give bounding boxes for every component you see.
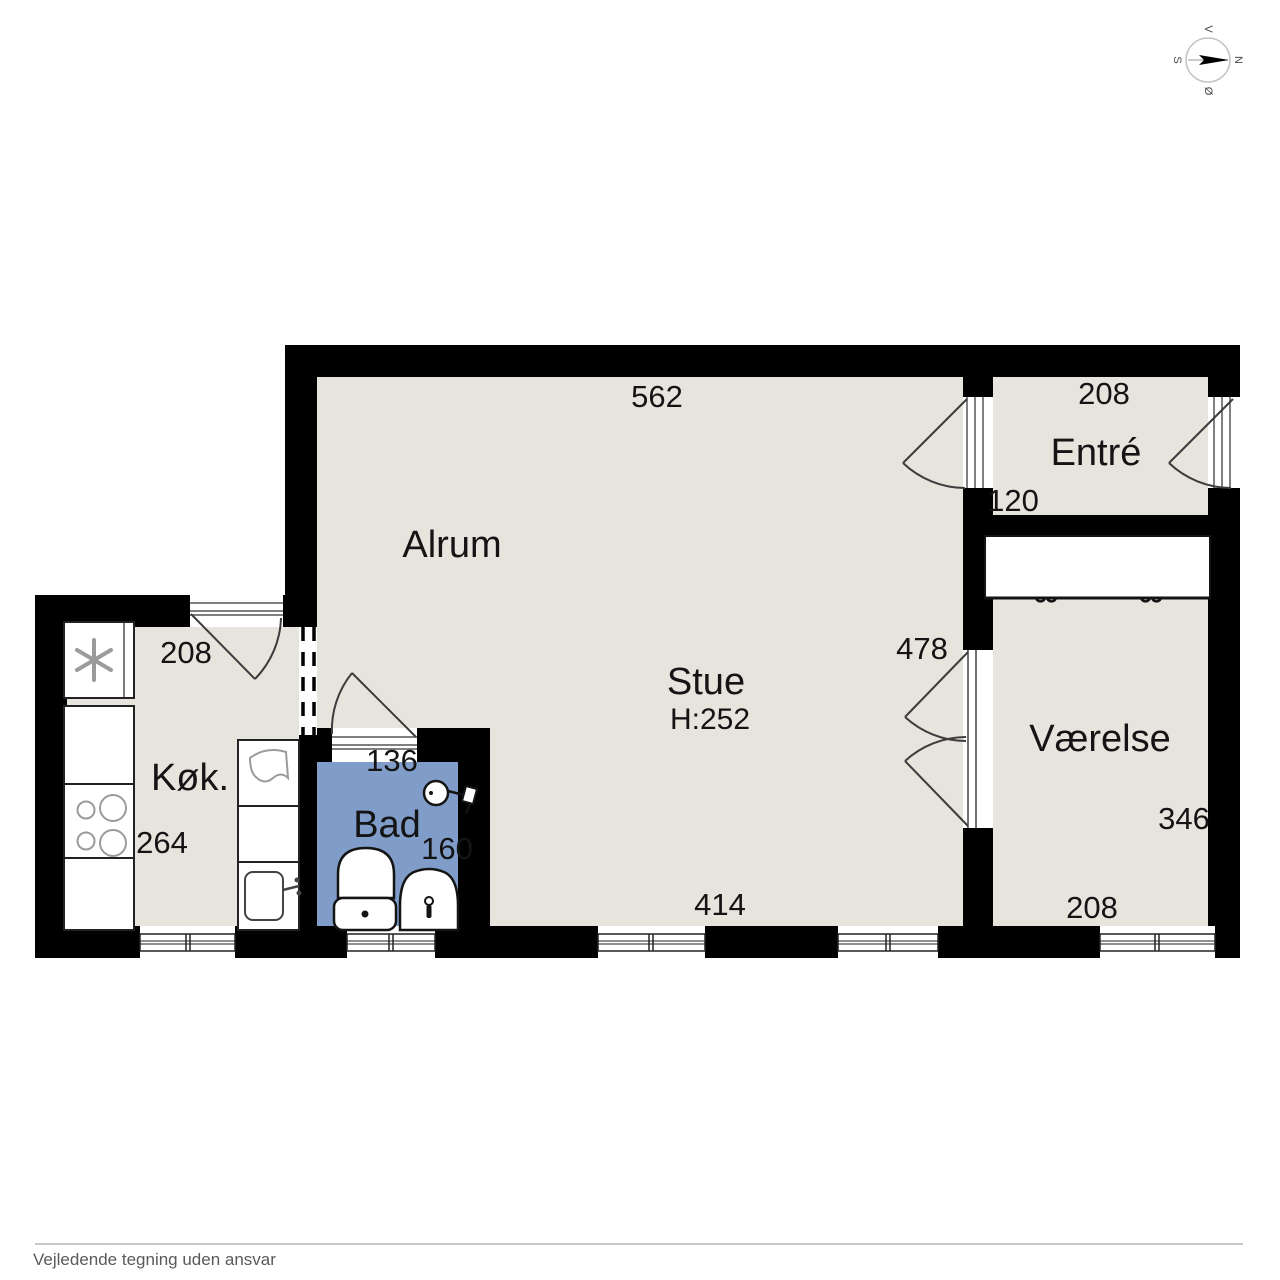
dim-stue-door: 478 (896, 631, 948, 666)
dim-koekken-width: 208 (160, 635, 212, 670)
dim-stue-top: 562 (631, 379, 683, 414)
wardrobe (985, 536, 1210, 601)
window-vaerelse (1100, 926, 1215, 958)
toilet-icon (334, 848, 396, 930)
wall-top (285, 345, 1240, 377)
window-kitchen (140, 926, 235, 958)
dim-vaerelse-width: 208 (1066, 890, 1118, 925)
room-label-alrum: Alrum (402, 524, 501, 566)
compass-s: S (1171, 56, 1183, 63)
compass-n: N (1232, 56, 1244, 64)
dim-entre-depth: 120 (987, 483, 1039, 518)
kitchen-sink-icon (238, 862, 302, 930)
dim-bad-height: 160 (421, 831, 473, 866)
compass-rose-icon: N Ø S V (1171, 25, 1244, 95)
wall-kitchen-left (35, 595, 67, 958)
wall-alrum-left (285, 345, 317, 627)
open-passage-dashed (299, 627, 317, 735)
dim-entre-width: 208 (1078, 376, 1130, 411)
wall-stue-entre-1 (963, 377, 993, 399)
kitchen-cabinet-drainer-icon (238, 740, 299, 806)
dim-bad-width: 136 (366, 743, 418, 778)
room-label-koekken: Køk. (151, 757, 229, 799)
double-door-opening (963, 650, 993, 828)
dim-koekken-height: 264 (136, 825, 188, 860)
disclaimer-text: Vejledende tegning uden ansvar (33, 1250, 276, 1270)
kitchen-counter (238, 806, 299, 862)
footer-divider (35, 1243, 1243, 1245)
room-label-bad: Bad (353, 804, 421, 846)
entre-inner-door-opening (963, 397, 993, 488)
window-stue-1 (598, 926, 705, 958)
kitchen-counter (64, 706, 134, 784)
fridge-freezer-icon (64, 622, 134, 698)
compass-v: V (1202, 25, 1214, 33)
room-label-entre: Entré (1051, 432, 1142, 474)
room-label-vaerelse: Værelse (1029, 718, 1171, 760)
floor-areas (50, 360, 1225, 943)
bathroom-sink-icon (400, 869, 458, 930)
floor-plan: Alrum Stue H:252 Entré Værelse Køk. Bad … (0, 0, 1280, 1280)
dim-vaerelse-height: 346 (1158, 801, 1210, 836)
floor-plan-page: Alrum Stue H:252 Entré Værelse Køk. Bad … (0, 0, 1280, 1280)
wall-bad-left (299, 735, 317, 958)
room-label-stue: Stue (667, 661, 745, 703)
stove-icon (64, 784, 134, 858)
window-stue-2 (838, 926, 938, 958)
kitchen-door-opening (190, 595, 283, 627)
dim-stue-bottom: 414 (694, 887, 746, 922)
wall-stue-entre-3 (963, 828, 993, 958)
compass-e: Ø (1202, 87, 1214, 96)
kitchen-counter (64, 858, 134, 930)
entry-door-opening (1208, 397, 1240, 488)
ceiling-height-label: H:252 (670, 703, 750, 736)
